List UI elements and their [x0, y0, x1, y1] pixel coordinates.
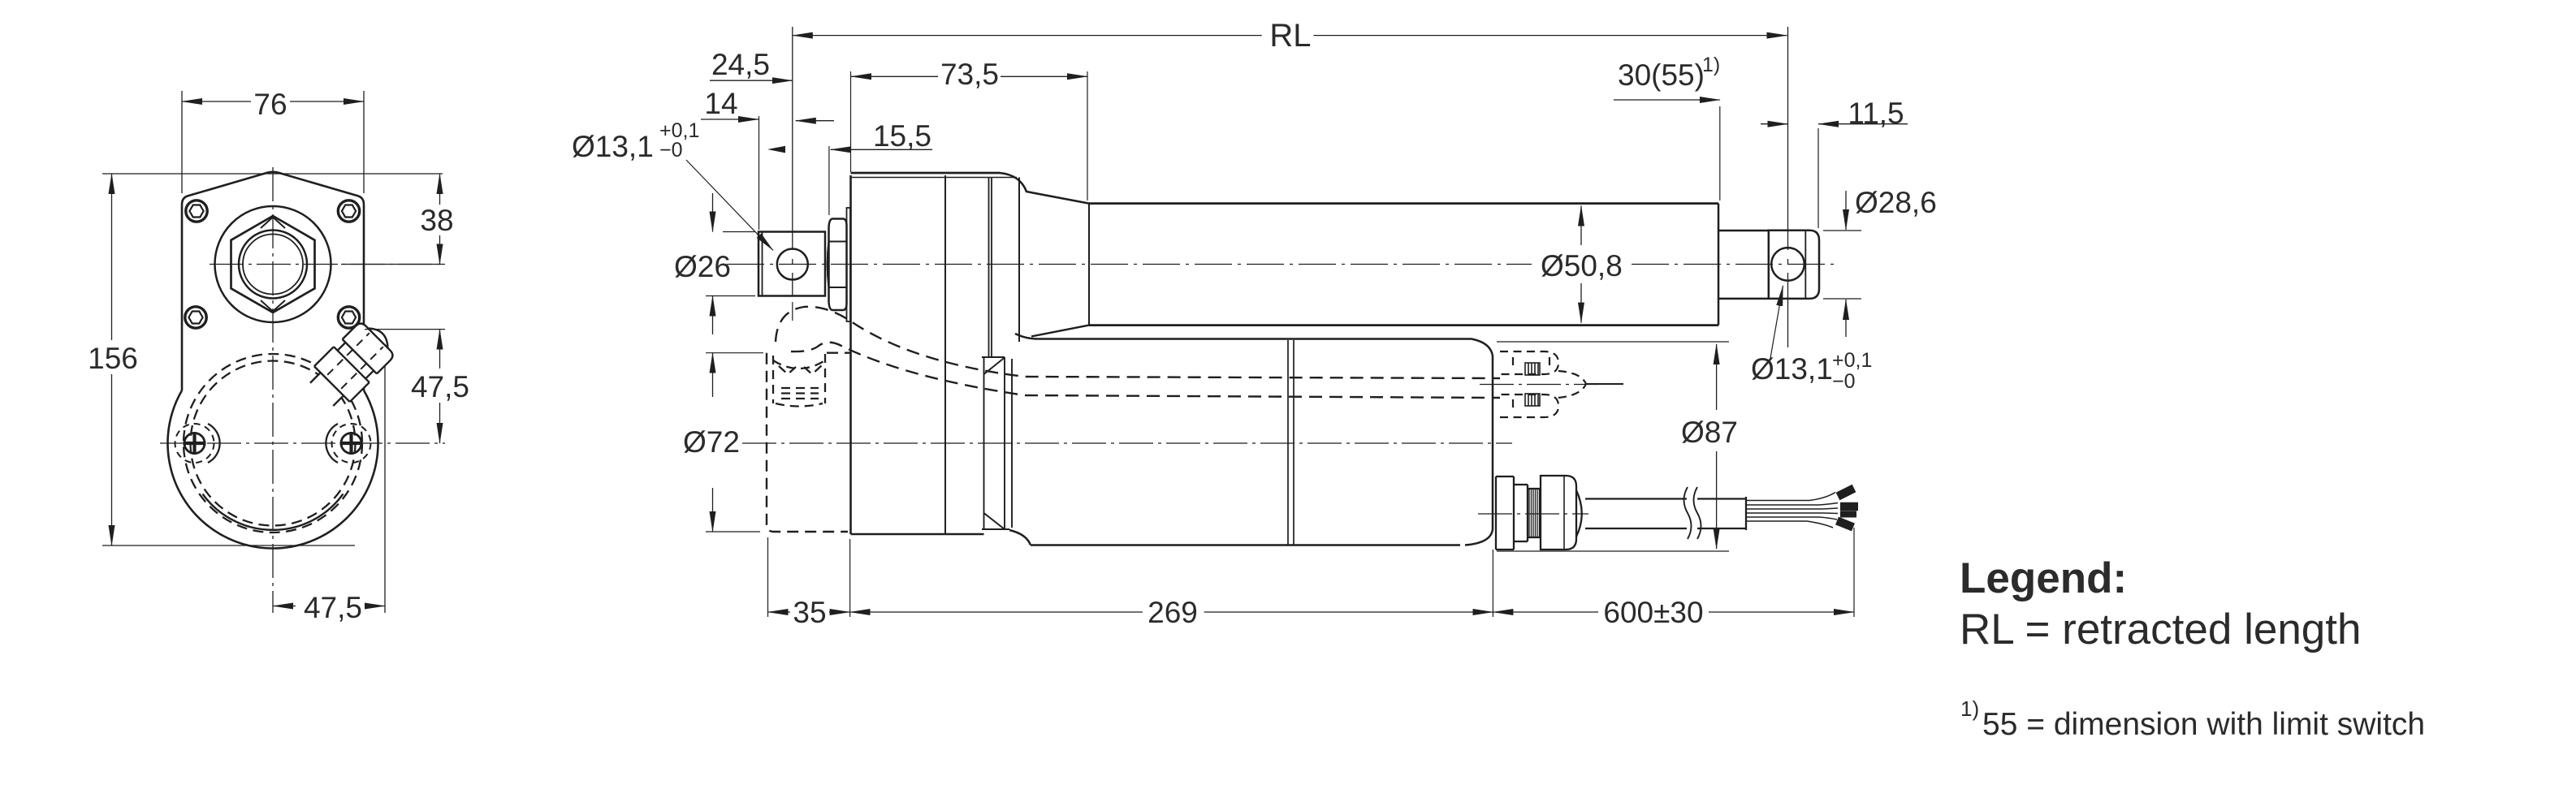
- svg-text:Ø87: Ø87: [1681, 416, 1738, 449]
- svg-text:RL: RL: [1269, 18, 1311, 54]
- svg-text:15,5: 15,5: [873, 119, 931, 153]
- svg-text:47,5: 47,5: [411, 370, 469, 403]
- svg-text:+0,1: +0,1: [1832, 349, 1872, 372]
- svg-text:Ø72: Ø72: [683, 425, 740, 459]
- svg-text:Ø26: Ø26: [674, 250, 731, 283]
- svg-text:30(55): 30(55): [1618, 58, 1705, 92]
- svg-text:156: 156: [88, 342, 138, 375]
- svg-text:−0: −0: [659, 139, 683, 162]
- svg-text:11,5: 11,5: [1848, 97, 1904, 130]
- svg-text:−0: −0: [1832, 370, 1856, 393]
- svg-text:Ø50,8: Ø50,8: [1541, 249, 1623, 282]
- svg-text:38: 38: [420, 204, 453, 237]
- svg-text:Ø28,6: Ø28,6: [1855, 186, 1937, 219]
- svg-text:73,5: 73,5: [940, 58, 999, 91]
- svg-text:Ø13,1: Ø13,1: [1751, 352, 1833, 386]
- svg-text:600±30: 600±30: [1603, 596, 1703, 629]
- svg-text:Ø13,1: Ø13,1: [572, 130, 654, 163]
- svg-text:RL = retracted length: RL = retracted length: [1960, 606, 2361, 653]
- svg-text:76: 76: [253, 88, 287, 121]
- svg-text:14: 14: [704, 87, 737, 120]
- svg-text:Legend:: Legend:: [1960, 554, 2127, 602]
- svg-text:24,5: 24,5: [711, 48, 770, 81]
- svg-text:47,5: 47,5: [304, 591, 362, 624]
- svg-text:55 = dimension with limit swit: 55 = dimension with limit switch: [1982, 707, 2425, 742]
- svg-text:269: 269: [1148, 596, 1198, 629]
- svg-text:35: 35: [793, 596, 826, 629]
- svg-text:1): 1): [1960, 696, 1979, 721]
- svg-text:1): 1): [1702, 54, 1720, 76]
